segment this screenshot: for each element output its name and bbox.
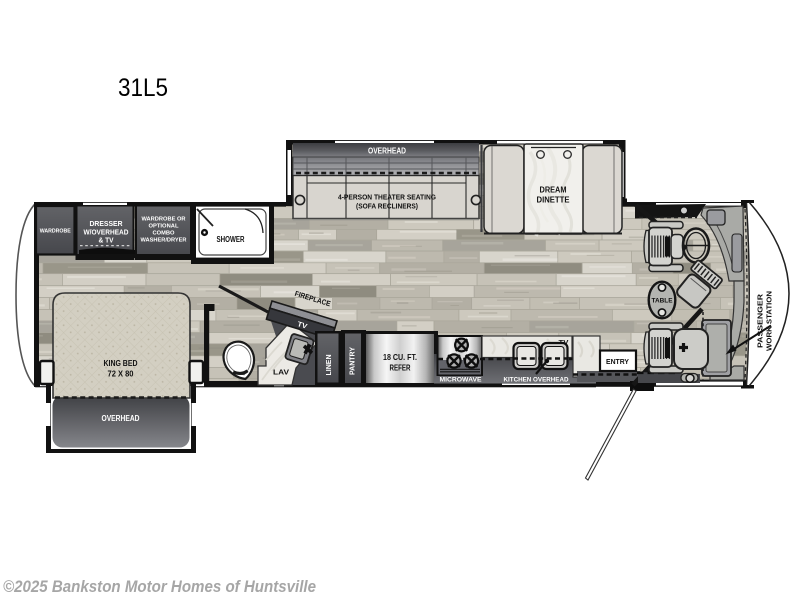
svg-text:SHOWER: SHOWER bbox=[217, 235, 245, 244]
svg-text:(SOFA RECLINERS): (SOFA RECLINERS) bbox=[356, 202, 419, 211]
svg-text:18 CU. FT.: 18 CU. FT. bbox=[383, 353, 417, 362]
svg-text:& TV: & TV bbox=[99, 236, 114, 245]
svg-text:KITCHEN OVERHEAD: KITCHEN OVERHEAD bbox=[504, 377, 569, 384]
svg-text:KING BED: KING BED bbox=[104, 359, 138, 368]
svg-text:LINEN: LINEN bbox=[324, 355, 333, 376]
svg-text:MICROWAVE: MICROWAVE bbox=[440, 377, 482, 384]
svg-text:ENTRY: ENTRY bbox=[606, 357, 629, 366]
svg-text:LAV: LAV bbox=[273, 368, 290, 377]
svg-text:WARDROBE: WARDROBE bbox=[40, 229, 71, 235]
svg-text:WORK STATION: WORK STATION bbox=[767, 291, 774, 351]
svg-text:31L5: 31L5 bbox=[118, 74, 168, 102]
svg-text:PASSENGER: PASSENGER bbox=[758, 294, 765, 348]
svg-text:COMBO: COMBO bbox=[153, 231, 176, 237]
svg-text:OVERHEAD: OVERHEAD bbox=[368, 147, 406, 156]
svg-text:©2025 Bankston Motor Homes of: ©2025 Bankston Motor Homes of Huntsville bbox=[3, 577, 316, 596]
svg-text:DINETTE: DINETTE bbox=[537, 196, 571, 205]
svg-text:72 X 80: 72 X 80 bbox=[108, 370, 135, 379]
svg-text:PANTRY: PANTRY bbox=[348, 347, 357, 375]
svg-text:WASHER/DRYER: WASHER/DRYER bbox=[141, 238, 187, 244]
svg-text:OVERHEAD: OVERHEAD bbox=[102, 414, 140, 423]
svg-text:DREAM: DREAM bbox=[540, 186, 567, 195]
svg-text:OPTIONAL: OPTIONAL bbox=[149, 224, 180, 230]
svg-text:4-PERSON THEATER SEATING: 4-PERSON THEATER SEATING bbox=[338, 193, 436, 202]
svg-text:REFER: REFER bbox=[390, 364, 411, 373]
svg-text:WARDROBE OR: WARDROBE OR bbox=[142, 217, 186, 223]
svg-text:TABLE: TABLE bbox=[652, 298, 673, 305]
